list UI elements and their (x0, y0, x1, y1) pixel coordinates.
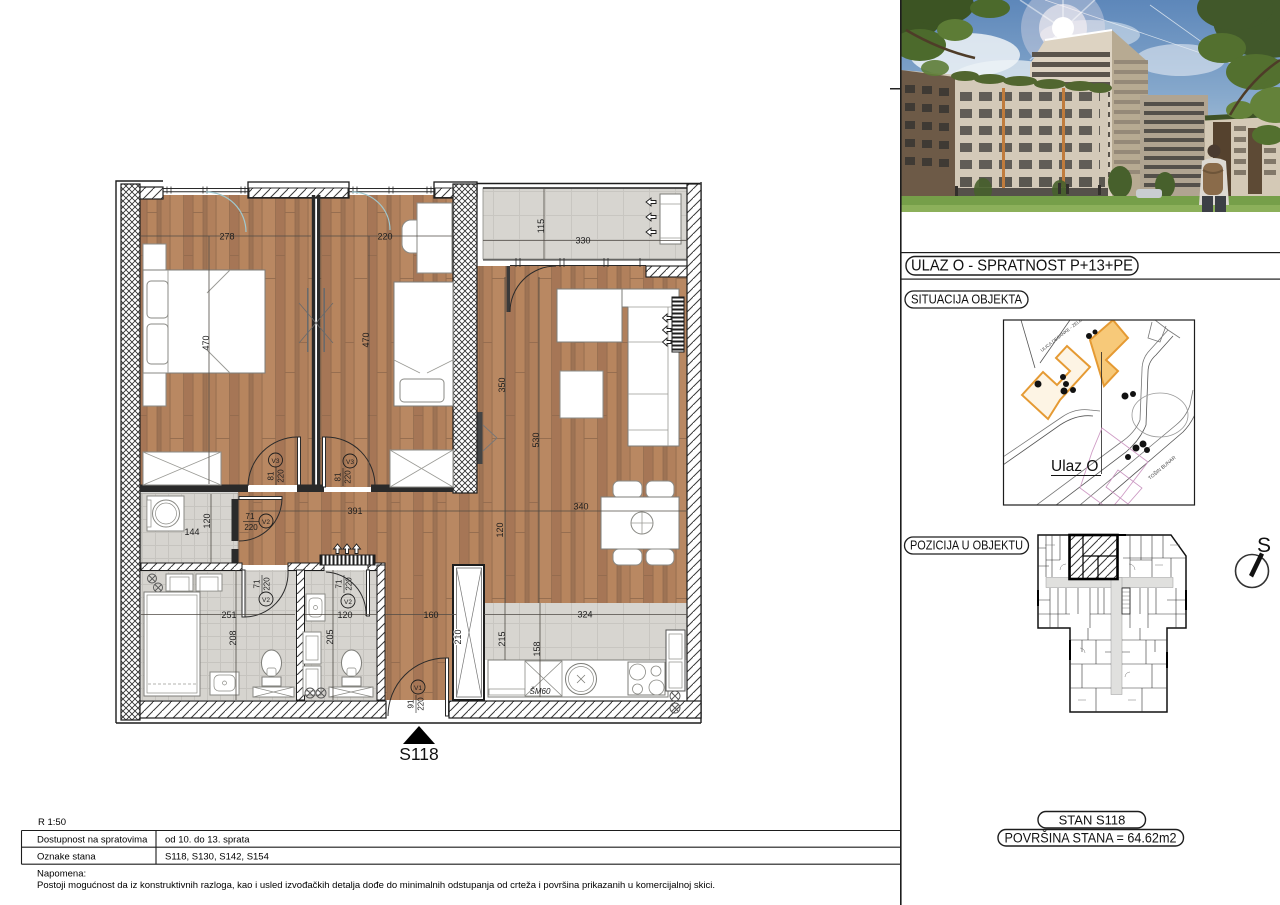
svg-text:120: 120 (202, 513, 212, 528)
svg-text:210: 210 (453, 629, 463, 644)
svg-text:160: 160 (423, 610, 438, 620)
svg-text:470: 470 (361, 332, 371, 347)
svg-text:208: 208 (228, 630, 238, 645)
svg-text:R 1:50: R 1:50 (38, 817, 66, 828)
svg-text:Ulaz O: Ulaz O (1051, 458, 1098, 475)
svg-text:S118, S130, S142, S154: S118, S130, S142, S154 (165, 852, 269, 863)
svg-text:ŠM60: ŠM60 (530, 687, 551, 696)
svg-text:220: 220 (263, 577, 272, 591)
svg-text:V2: V2 (262, 597, 270, 604)
svg-text:215: 215 (497, 631, 507, 646)
svg-text:91: 91 (407, 699, 416, 708)
svg-text:71: 71 (246, 512, 255, 521)
svg-text:220: 220 (377, 232, 392, 242)
svg-text:71: 71 (335, 579, 344, 588)
svg-text:ULAZ O - SPRATNOST P+13+PE: ULAZ O - SPRATNOST P+13+PE (911, 258, 1133, 275)
svg-text:81: 81 (334, 472, 343, 481)
svg-text:V2: V2 (262, 519, 270, 526)
svg-text:od 10. do 13. sprata: od 10. do 13. sprata (165, 835, 250, 846)
svg-text:220: 220 (244, 523, 258, 532)
svg-text:STAN S118: STAN S118 (1059, 813, 1126, 828)
svg-text:Dostupnost na spratovima: Dostupnost na spratovima (37, 835, 148, 846)
svg-text:SITUACIJA OBJEKTA: SITUACIJA OBJEKTA (911, 293, 1023, 307)
svg-text:278: 278 (219, 232, 234, 242)
svg-text:205: 205 (325, 629, 335, 644)
svg-text:144: 144 (184, 527, 199, 537)
svg-text:81: 81 (267, 471, 276, 480)
svg-text:115: 115 (536, 219, 546, 233)
svg-text:120: 120 (337, 610, 352, 620)
svg-text:220: 220 (417, 697, 426, 711)
svg-text:S: S (1257, 534, 1271, 557)
svg-text:470: 470 (201, 335, 211, 350)
svg-text:V2: V2 (344, 599, 352, 606)
svg-text:158: 158 (532, 641, 542, 656)
svg-text:350: 350 (497, 377, 507, 392)
svg-text:POVRŠINA STANA = 64.62m2: POVRŠINA STANA = 64.62m2 (1005, 831, 1177, 846)
svg-text:Oznake stana: Oznake stana (37, 852, 96, 863)
svg-text:V1: V1 (414, 685, 422, 692)
svg-text:V3: V3 (272, 458, 280, 465)
svg-text:Napomena:: Napomena: (37, 869, 86, 880)
svg-text:251: 251 (221, 610, 236, 620)
svg-text:71: 71 (253, 579, 262, 588)
svg-text:S118: S118 (399, 744, 439, 764)
svg-text:330: 330 (575, 236, 590, 246)
svg-text:Postoji mogućnost da iz konstr: Postoji mogućnost da iz konstruktivnih r… (37, 880, 715, 891)
svg-text:POZICIJA U OBJEKTU: POZICIJA U OBJEKTU (910, 539, 1023, 553)
svg-text:340: 340 (573, 502, 588, 512)
svg-text:120: 120 (495, 522, 505, 537)
svg-text:V3: V3 (346, 459, 354, 466)
svg-text:530: 530 (531, 432, 541, 447)
svg-text:391: 391 (347, 506, 362, 516)
svg-text:220: 220 (344, 470, 353, 484)
svg-text:324: 324 (577, 610, 592, 620)
svg-text:220: 220 (345, 577, 354, 591)
svg-text:220: 220 (277, 469, 286, 483)
